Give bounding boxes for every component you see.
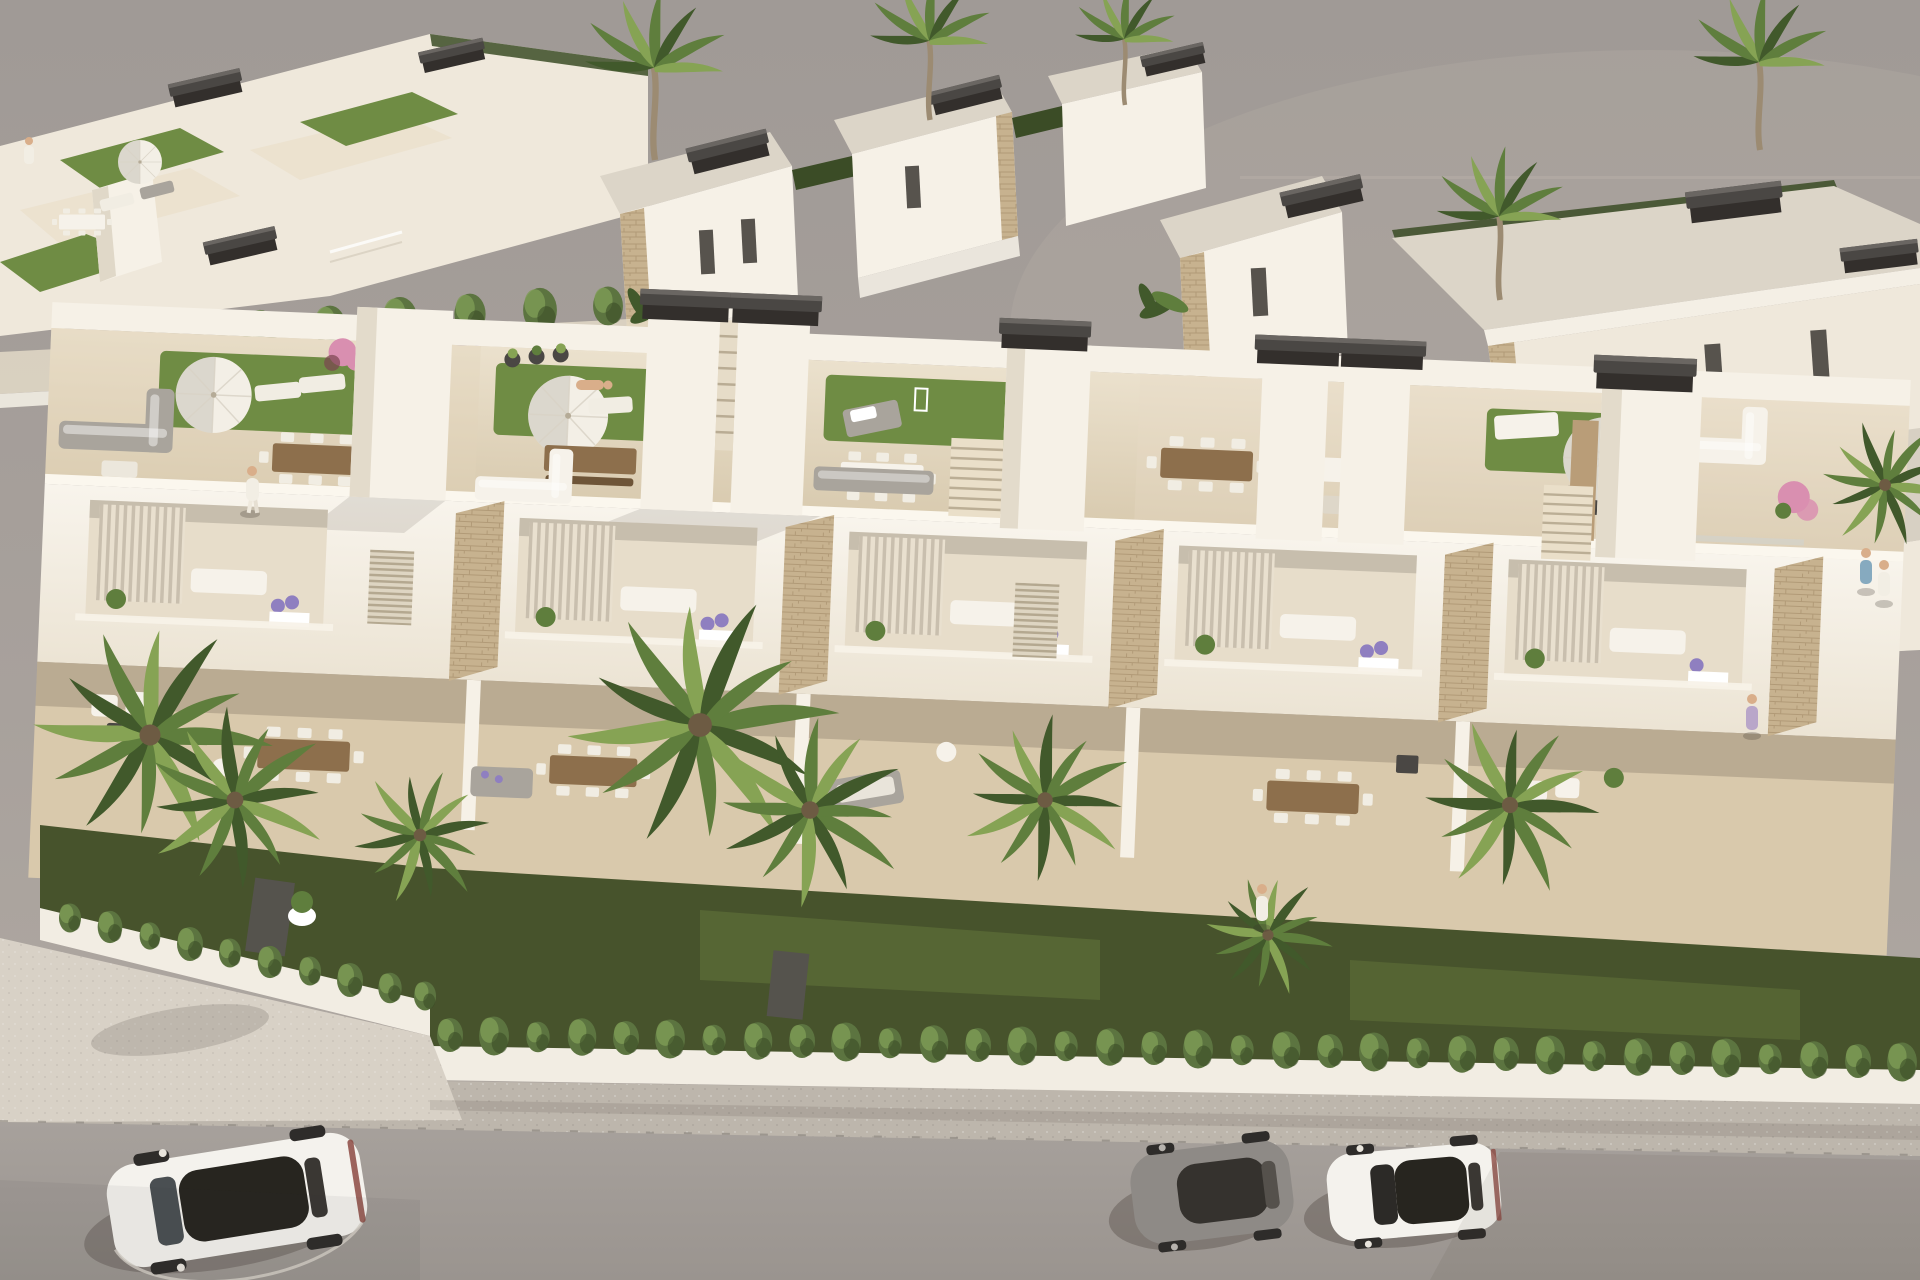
louvered-window <box>1012 583 1059 659</box>
pergola-cap <box>1254 334 1343 366</box>
louvered-shutter <box>96 504 186 604</box>
balcony-module <box>75 499 338 631</box>
cabin-glass <box>1175 1155 1272 1226</box>
balcony-module <box>1164 545 1427 677</box>
render-canvas <box>0 0 1920 1280</box>
daybed <box>470 766 533 799</box>
main-townhouse-row <box>28 264 1912 955</box>
stone-clad-panel <box>1768 554 1824 738</box>
exterior-stair <box>1541 485 1593 561</box>
stair-tower <box>640 313 720 512</box>
pergola-cap <box>639 289 732 323</box>
road-corner-shade <box>1430 1152 1920 1280</box>
stone-clad-panel <box>1108 527 1164 711</box>
balcony-sofa <box>1609 628 1686 655</box>
louvered-shutter <box>855 536 945 636</box>
daybed <box>1494 412 1559 440</box>
stone-clad-panel <box>1438 541 1494 725</box>
louvered-window <box>367 550 414 626</box>
stone-clad-panel <box>779 513 835 697</box>
stone-clad-panel <box>449 499 505 683</box>
scene-render <box>0 0 1920 1280</box>
balcony-module <box>1494 559 1757 691</box>
planter-bush <box>291 891 313 913</box>
pergola-cap <box>1593 355 1697 393</box>
stair-tower <box>1256 359 1329 542</box>
window-slit <box>741 219 757 264</box>
balcony-module <box>505 517 768 649</box>
grill-cabinet <box>1396 755 1419 774</box>
louvered-shutter <box>1515 564 1605 664</box>
stone-path <box>767 950 810 1019</box>
cypress <box>593 286 623 325</box>
glass-roof <box>1393 1155 1470 1225</box>
window-slit <box>1251 268 1268 317</box>
stair-tower <box>1337 362 1410 545</box>
parasol <box>118 140 162 184</box>
window-slit <box>699 230 715 275</box>
louvered-shutter <box>1185 550 1275 650</box>
balcony-sofa <box>1279 614 1356 641</box>
stair-tower <box>730 317 810 516</box>
coffee-table <box>101 460 138 477</box>
window-slit <box>905 166 921 209</box>
person-sunbathing <box>576 380 613 390</box>
exterior-stair <box>948 438 1003 518</box>
balcony-sofa <box>190 568 267 595</box>
louvered-shutter <box>526 522 616 622</box>
person-seated <box>24 137 34 164</box>
sun-lounger <box>588 396 633 415</box>
pergola-cap <box>998 318 1091 352</box>
pergola-cap <box>729 292 822 326</box>
balcony-sofa <box>620 586 697 613</box>
pergola-cap <box>1338 338 1427 370</box>
